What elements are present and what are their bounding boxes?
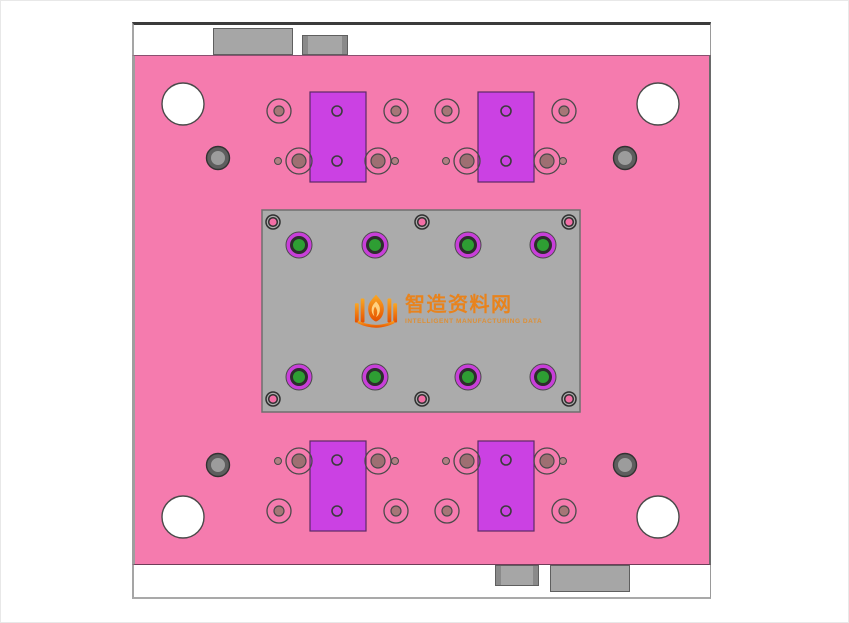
top-clamp-tab-large	[213, 28, 293, 55]
bottom-clamp-tab-small	[495, 565, 539, 586]
watermark-text: 智造资料网 INTELLIGENT MANUFACTURING DATA	[405, 295, 542, 325]
watermark: 智造资料网 INTELLIGENT MANUFACTURING DATA	[353, 292, 542, 328]
watermark-title: 智造资料网	[405, 295, 542, 316]
top-clamp-tab-small	[302, 35, 348, 55]
mold-drawing-canvas: 智造资料网 INTELLIGENT MANUFACTURING DATA	[0, 0, 849, 623]
book-flame-logo-icon	[353, 292, 399, 328]
watermark-subtitle: INTELLIGENT MANUFACTURING DATA	[405, 318, 542, 325]
bottom-clamp-tab-large	[550, 565, 630, 592]
